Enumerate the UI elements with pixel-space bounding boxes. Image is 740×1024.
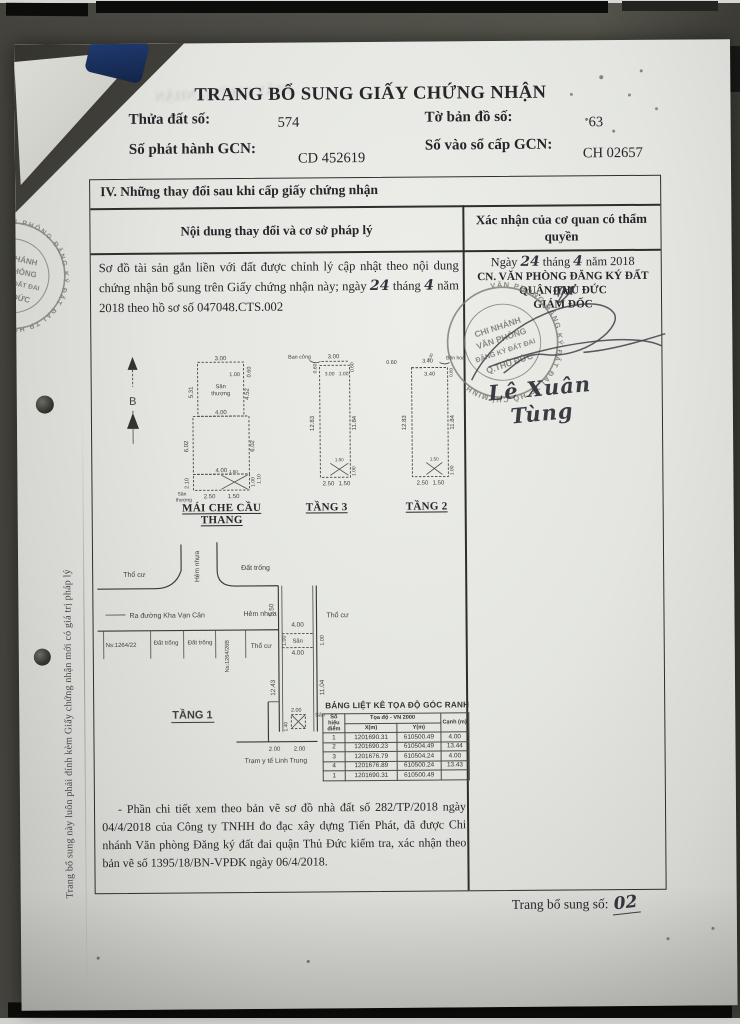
backdrop-bottom-strip [0, 1018, 740, 1024]
cell: 610504.24 [397, 751, 440, 761]
column-header-content: Nội dung thay đổi và cơ sở pháp lý [90, 207, 462, 253]
dim: 1.40 [283, 722, 289, 732]
balcony-pointer [309, 360, 320, 362]
cell: 13.44 [441, 741, 469, 751]
dim: 1.00 [282, 635, 288, 646]
dim: 1.50 [335, 457, 344, 462]
change-note-thang: tháng [393, 279, 421, 293]
dim: 5.31 [189, 386, 195, 398]
cell: 1 [323, 771, 345, 781]
roof-stair-outline [193, 474, 249, 490]
issue-number-value: CD 452619 [298, 150, 365, 168]
dim: 1.50 [430, 456, 439, 461]
dim: 1.50 [229, 469, 238, 474]
alley-label: Hẻm nhựa [194, 550, 201, 582]
dim: 1.50 [433, 480, 445, 486]
balcony-label: Ban công [288, 354, 311, 360]
parcel-number-value: 574 [278, 115, 300, 132]
land-label: Đất trống [188, 640, 213, 646]
map-sheet-value: 63 [589, 114, 604, 131]
dim: 4.52 [245, 387, 251, 399]
cell: 3 [323, 752, 345, 762]
coord-row: 11201690.31610500.49 [323, 770, 469, 781]
dim: 2.10 [184, 478, 190, 489]
dim: 0.60 [247, 367, 253, 378]
paper-crease [82, 417, 88, 1007]
dim: 1.00 [229, 372, 240, 378]
dim: 1.10 [256, 474, 262, 484]
road-edge-main [98, 630, 279, 631]
dim: 4.00 [215, 468, 227, 474]
floor3-plan-drawing: Ban công 3.00 0.60 0.60 3.00 1.00 12.83 … [285, 351, 366, 502]
land-label: Thổ cư [326, 611, 349, 619]
dim: 12.83 [310, 415, 316, 431]
cell: 4.00 [440, 732, 468, 742]
edge-stamp-line1: CHI NHÁNH [14, 250, 38, 268]
roof-plan-drawing: 3.00 0.60 1.00 Sân thượng 5.31 4.52 4.00… [168, 352, 274, 503]
floor2-plan-drawing: 0.60 0.60 3.40 Bồn hoa 3.40 0.60 12.83 1… [381, 350, 467, 501]
parcel-number-label: Thửa đất số: [129, 111, 211, 129]
dim: 0.60 [350, 362, 356, 372]
dim: 1.00 [339, 371, 349, 377]
dim: 1.00 [351, 466, 357, 476]
cell: 1201690.31 [345, 732, 397, 742]
alley-label: Hẻm nhựa [243, 611, 276, 618]
dim: 3.40 [422, 359, 433, 365]
handwritten-day: 24 [370, 278, 390, 294]
backdrop-right-nub [729, 46, 740, 92]
lot-boundary-left [278, 586, 279, 732]
issue-number-label: Số phát hành GCN: [129, 141, 256, 159]
dim: 11.84 [450, 414, 456, 429]
cell: 610500.49 [397, 732, 440, 742]
dim: 2.50 [204, 494, 216, 500]
cell: 1 [323, 733, 345, 743]
backdrop-bar-left [6, 3, 88, 17]
annex-bottom [236, 741, 317, 742]
dim: 6.02 [250, 439, 256, 451]
planter-pointer [440, 362, 450, 364]
section-iv-heading: IV. Những thay đổi sau khi cấp giấy chứn… [100, 180, 640, 200]
dim: 6.02 [184, 440, 190, 452]
coordinate-table-title: BẢNG LIỆT KÊ TỌA ĐỘ GÓC RANH [322, 700, 472, 710]
cell: 4.00 [441, 751, 469, 761]
dim: 1.00 [320, 635, 326, 646]
dim: 1.50 [339, 481, 351, 487]
photo-backdrop: GIẤY CHỨNG NHẬN VĂN PHÒNG ĐĂNG KÝ ĐẤT ĐA… [0, 0, 740, 1024]
backdrop-bar-center [96, 1, 608, 13]
dim: 0.60 [449, 367, 454, 376]
section-marker-letter: B [129, 396, 136, 408]
road-corner-left [97, 545, 181, 590]
director-initial-scribble [558, 284, 576, 302]
dim: 2.00 [291, 708, 302, 714]
cell: 2 [323, 742, 345, 752]
section-marker: B [115, 355, 150, 447]
dim: 0.60 [313, 363, 319, 373]
dim: 11.84 [352, 415, 358, 430]
dim: 2.00 [269, 747, 281, 753]
register-number-label: Số vào sổ cấp GCN: [425, 137, 553, 155]
lot-boundary-right [316, 585, 317, 731]
dim: 3.00 [215, 356, 227, 362]
dim: 1.00 [449, 465, 455, 475]
supplementary-page-number: Trang bổ sung số: 02 [512, 893, 640, 915]
change-note-paragraph: Sơ đồ tài sản gắn liền với đất được chỉn… [99, 256, 459, 318]
map-sheet-label: Tờ bản đồ số: [425, 109, 513, 127]
section-arrow-top-icon [127, 357, 137, 370]
room-label: Sân [216, 384, 226, 390]
coordinate-table: Số hiệu điểm Tọa độ - VN 2000 Cạnh (m) X… [322, 712, 470, 781]
floor3-plan-label: TẦNG 3 [279, 501, 375, 514]
page-title: TRANG BỔ SUNG GIẤY CHỨNG NHẬN [100, 82, 640, 107]
section-arrow-bottom-icon [127, 413, 139, 429]
cell: 13.43 [441, 760, 469, 770]
ground-floor-label: TẦNG 1 [172, 708, 212, 721]
dim: 11.04 [319, 679, 326, 695]
dim: 2.50 [417, 481, 429, 487]
dim: 3.00 [328, 354, 340, 360]
dim: 2.50 [323, 481, 335, 487]
cell: 1201676.79 [345, 751, 397, 761]
dim: 4.00 [215, 410, 227, 416]
ground-floor-site-plan: Thổ cư Hẻm nhựa Đất trống 5.50 Ra đường … [95, 529, 355, 771]
dim: 0.60 [386, 360, 397, 366]
cell: 610500.49 [398, 770, 441, 780]
dim: 3.40 [424, 372, 435, 378]
edge-registry-stamp: VĂN PHÒNG ĐĂNG KÝ ĐẤT ĐAI TP HỒ CHÍ MINH… [14, 199, 89, 352]
land-label: Đất trống [154, 641, 179, 647]
col-edge-header: Cạnh (m) [440, 713, 469, 732]
backdrop-bar-right [622, 1, 718, 11]
margin-validity-note: Trang bổ sung này luôn phải đính kèm Giấ… [62, 540, 76, 898]
house-number-label: Ns:1264/26B [225, 640, 231, 673]
col-point-header: Số hiệu điểm [323, 714, 345, 733]
punch-hole-bottom [34, 649, 51, 666]
land-label: Thổ cư [251, 642, 273, 650]
column-header-confirm-text: Xác nhận của cơ quan có thẩm quyền [464, 211, 658, 245]
floor2-plan-label: TẦNG 2 [389, 500, 465, 513]
roof-plan-label: MÁI CHE CẦU THANG [163, 502, 281, 527]
signature-underline [488, 339, 661, 367]
handwritten-page-number: 02 [611, 892, 641, 916]
dim: 3.00 [325, 371, 335, 377]
dim: 1.50 [228, 494, 240, 500]
punch-hole-top [36, 396, 54, 414]
yard-label: Sân [293, 639, 303, 645]
room-label: thượng [211, 391, 230, 397]
cell [441, 770, 469, 780]
cell: 1201690.23 [345, 742, 397, 752]
roof-lower-outline [193, 416, 249, 474]
dim: 12.83 [402, 415, 408, 431]
page-number-label: Trang bổ sung số: [512, 896, 609, 912]
house-number-label: Ns:1264/22 [106, 643, 137, 649]
land-label: Đất trống [241, 563, 270, 572]
clinic-label: Trạm y tế Linh Trung [245, 756, 308, 765]
dim: 4.00 [291, 622, 304, 629]
planter-label: Bồn hoa [446, 355, 465, 361]
dim: 12.43 [270, 679, 277, 695]
street-label: Ra đường Kha Vạn Cân [129, 612, 205, 620]
col-y-header: Y(m) [397, 722, 440, 732]
cell: 1201676.89 [345, 761, 397, 771]
cell: 1201690.31 [345, 770, 397, 780]
document-page: GIẤY CHỨNG NHẬN VĂN PHÒNG ĐĂNG KÝ ĐẤT ĐA… [14, 39, 738, 1011]
section-iv-box: IV. Những thay đổi sau khi cấp giấy chứn… [89, 175, 667, 894]
dim: 4.00 [292, 650, 305, 657]
coordinate-table-block: BẢNG LIỆT KÊ TỌA ĐỘ GÓC RANH Số hiệu điể… [322, 700, 473, 781]
cell: 4 [323, 761, 345, 771]
lot-boundary-right2 [313, 585, 314, 731]
column-header-confirm: Xác nhận của cơ quan có thẩm quyền [464, 206, 658, 251]
land-label: Thổ cư [123, 571, 146, 579]
dim: 2.00 [294, 747, 306, 753]
detail-reference-note: - Phần chi tiết xem theo bản vẽ sơ đồ nh… [102, 797, 467, 872]
column-header-content-text: Nội dung thay đổi và cơ sở pháp lý [180, 222, 372, 240]
cell: 610500.24 [397, 760, 440, 770]
register-number-value: CH 02657 [583, 145, 643, 162]
cell: 610504.49 [397, 741, 440, 751]
col-x-header: X(m) [345, 723, 397, 733]
lot-boundary-left2 [282, 586, 283, 732]
